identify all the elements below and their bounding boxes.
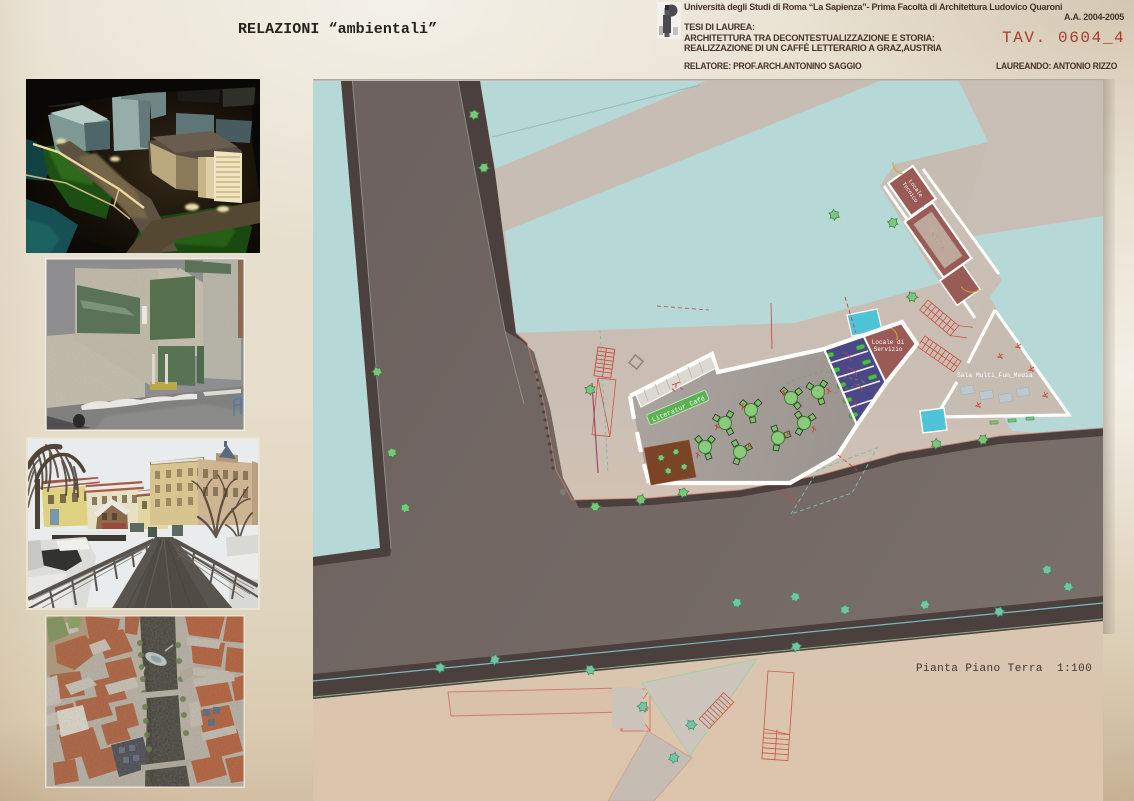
svg-text:Servizio: Servizio [874,346,903,353]
svg-text:Locale di: Locale di [872,339,905,346]
svg-text:Sala Multi_Fun_Media: Sala Multi_Fun_Media [957,372,1033,379]
